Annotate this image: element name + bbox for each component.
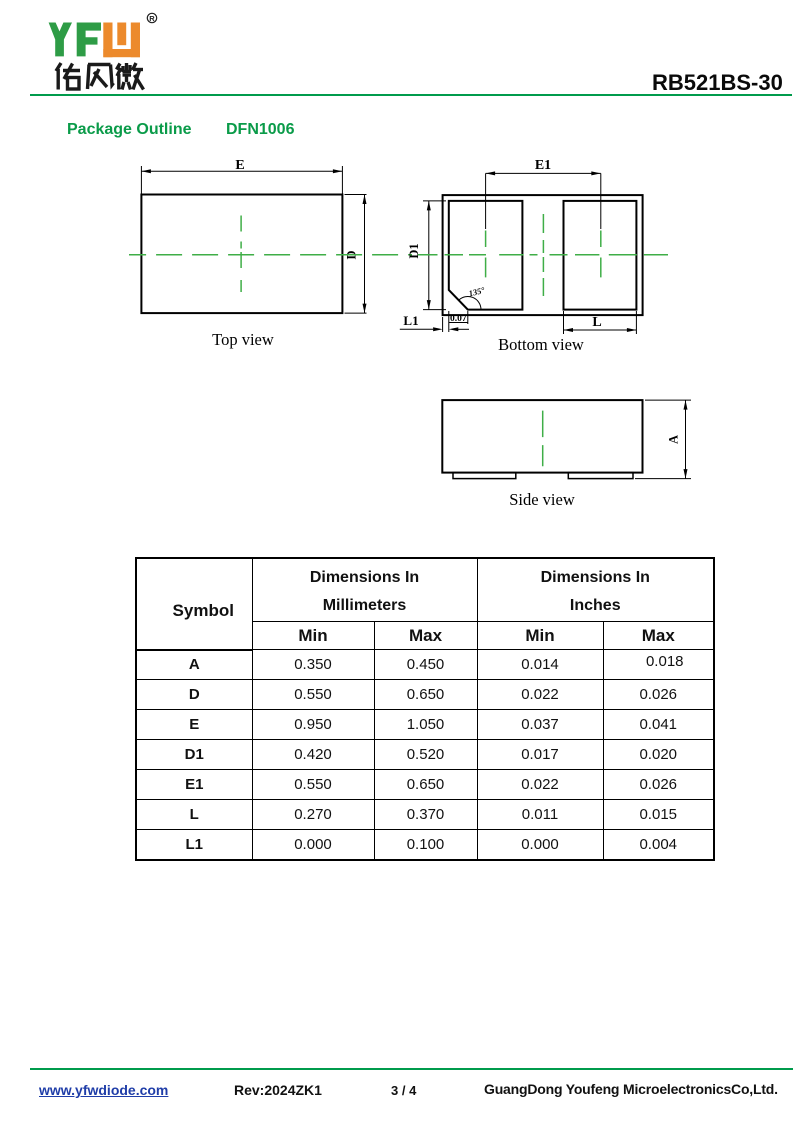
svg-text:L: L bbox=[592, 315, 601, 330]
svg-text:0.07: 0.07 bbox=[450, 314, 467, 324]
svg-text:R: R bbox=[149, 14, 155, 23]
svg-text:L1: L1 bbox=[403, 313, 418, 328]
svg-text:E1: E1 bbox=[535, 158, 551, 173]
svg-text:A: A bbox=[667, 435, 681, 444]
svg-text:135°: 135° bbox=[468, 285, 487, 299]
svg-text:Side view: Side view bbox=[509, 490, 575, 509]
svg-text:Bottom view: Bottom view bbox=[498, 335, 584, 354]
svg-text:E: E bbox=[235, 158, 244, 173]
svg-text:D1: D1 bbox=[407, 243, 421, 258]
svg-text:Top view: Top view bbox=[212, 330, 274, 349]
